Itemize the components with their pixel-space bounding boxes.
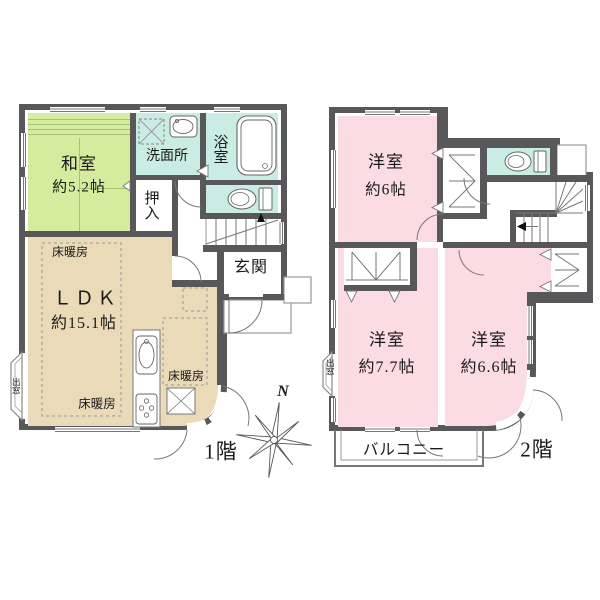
room-size-ldk: 約15.1帖: [51, 316, 117, 332]
floor-heating-label: 床暖房: [168, 370, 204, 382]
door-arc: [154, 430, 187, 459]
floor-heating-label: 床暖房: [52, 246, 88, 258]
roof-ledge: [557, 145, 586, 178]
floor1-title: 1階: [204, 442, 238, 463]
bay-window-label-1f: 出窓: [12, 378, 21, 395]
floor2-title: 2階: [520, 440, 554, 461]
toilet-icon-1f: [228, 188, 272, 210]
room-size-yoshitsu66: 約6.6帖: [460, 360, 517, 376]
bathtub-icon: [237, 116, 276, 175]
refrigerator-space-icon: [167, 388, 195, 414]
floorplan-canvas: 和室 約5.2帖 洗面所 浴室 押入 玄関 ＬＤＫ 約15.1帖 床暖房 床暖房…: [0, 0, 600, 600]
room-label-ldk: ＬＤＫ: [53, 290, 119, 309]
north-label: N: [277, 384, 289, 400]
toilet-icon-2f: [505, 151, 546, 172]
room-label-genkan: 玄関: [234, 260, 268, 276]
floor-heating-label: 床暖房: [78, 398, 116, 411]
bathroom-sink-icon: [170, 116, 197, 137]
room-size-yoshitsu77: 約7.7帖: [358, 360, 415, 376]
door-arc: [533, 390, 562, 421]
room-label-yoshitsu66: 洋室: [471, 332, 507, 349]
room-label-oshiire: 押入: [143, 190, 158, 220]
room-size-yoshitsu6: 約6帖: [365, 182, 407, 198]
bay-window-label-2f: 出窓: [326, 359, 335, 376]
floor2-plan: [323, 110, 590, 466]
room-label-senmenjo: 洗面所: [146, 150, 188, 164]
room-label-yokushitsu: 浴室: [212, 134, 227, 164]
compass-rose-icon: [231, 397, 317, 483]
room-label-washitsu: 和室: [61, 156, 97, 173]
room-yoshitsu-6: [338, 116, 437, 242]
kitchen-counter: [133, 330, 160, 427]
balcony-label: バルコニー: [363, 442, 445, 458]
entrance-step: [284, 277, 311, 303]
room-label-yoshitsu77: 洋室: [369, 332, 405, 349]
room-size-washitsu: 約5.2帖: [52, 181, 106, 196]
room-label-yoshitsu6: 洋室: [368, 154, 404, 171]
